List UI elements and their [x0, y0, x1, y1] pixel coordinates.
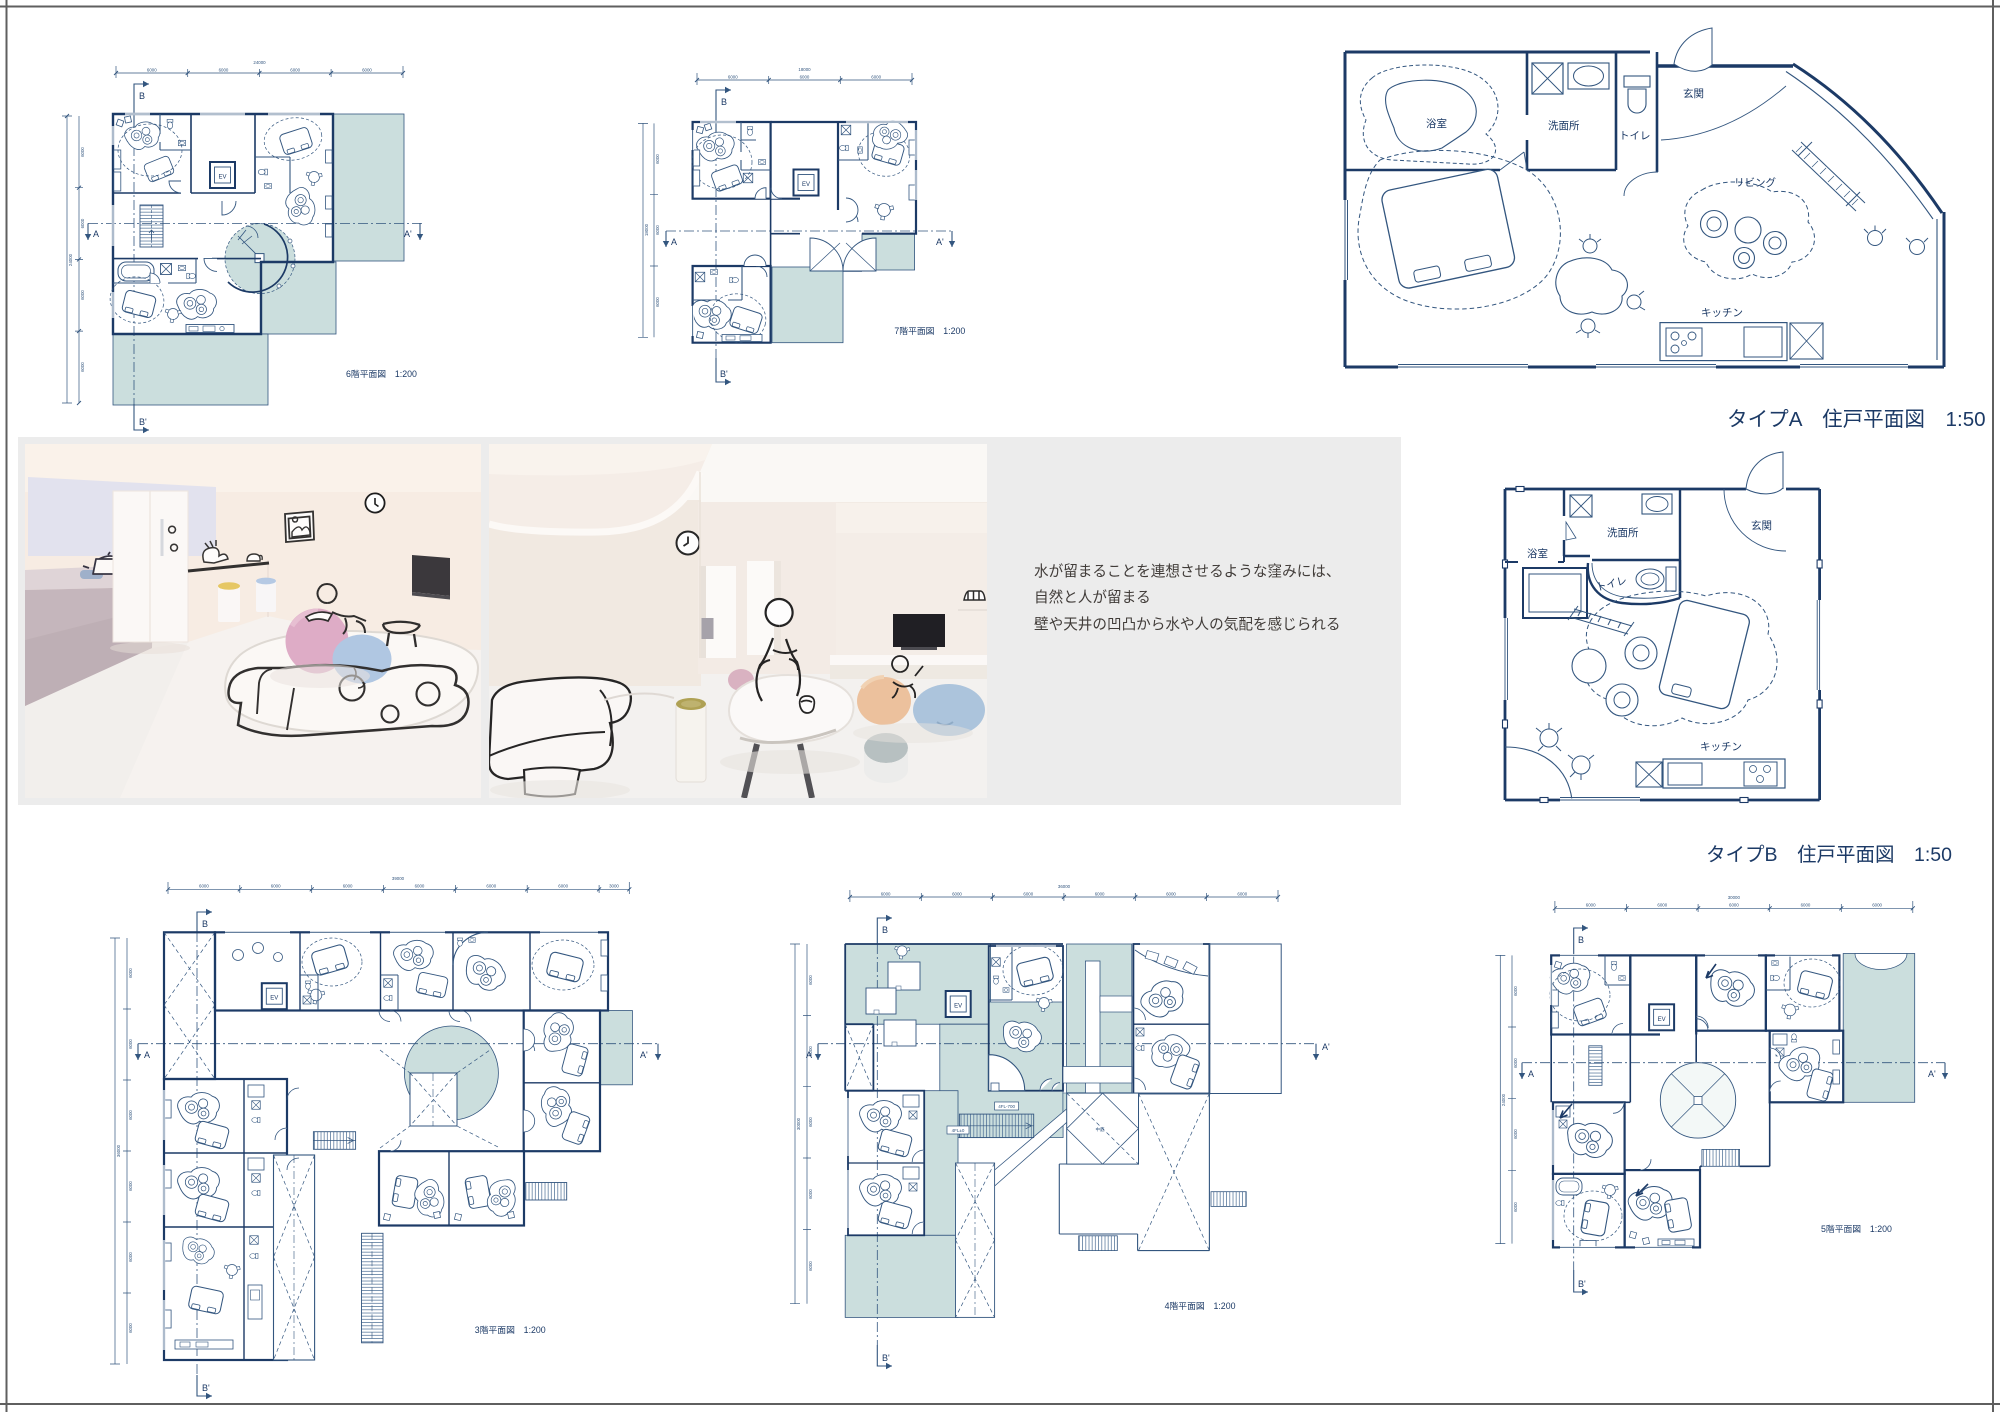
svg-text:洗面所: 洗面所	[1548, 120, 1580, 132]
svg-text:4FL±0: 4FL±0	[952, 1128, 965, 1133]
svg-text:6000: 6000	[1513, 1202, 1518, 1212]
svg-text:18000: 18000	[798, 67, 811, 72]
svg-text:6000: 6000	[1801, 903, 1811, 908]
svg-text:壁や天井の凹凸から水や人の気配を感じられる: 壁や天井の凹凸から水や人の気配を感じられる	[1034, 616, 1340, 633]
svg-text:6000: 6000	[1237, 892, 1247, 897]
svg-text:浴室: 浴室	[1527, 547, 1548, 560]
svg-text:B: B	[1578, 935, 1584, 945]
svg-text:A': A'	[1928, 1069, 1936, 1079]
svg-text:6000: 6000	[1729, 903, 1739, 908]
svg-text:30000: 30000	[796, 1117, 801, 1130]
svg-text:6000: 6000	[1513, 1058, 1518, 1068]
svg-text:タイプB 住戸平面図 1:50: タイプB 住戸平面図 1:50	[1706, 844, 1952, 866]
svg-text:6000: 6000	[128, 1252, 133, 1262]
svg-text:B': B'	[139, 417, 147, 427]
svg-text:A: A	[671, 237, 677, 247]
svg-text:6000: 6000	[486, 884, 496, 889]
svg-text:6000: 6000	[1166, 892, 1176, 897]
svg-text:キッチン: キッチン	[1701, 307, 1743, 319]
svg-text:30000: 30000	[1728, 895, 1741, 900]
svg-text:6000: 6000	[80, 147, 85, 157]
svg-text:A: A	[1528, 1069, 1534, 1079]
svg-text:6000: 6000	[128, 1181, 133, 1191]
svg-text:6000: 6000	[415, 884, 425, 889]
svg-text:6000: 6000	[1657, 903, 1667, 908]
svg-text:3階平面図 1:200: 3階平面図 1:200	[475, 1325, 546, 1335]
svg-text:6000: 6000	[128, 1039, 133, 1049]
svg-text:6000: 6000	[80, 218, 85, 228]
svg-text:リビング: リビング	[1734, 176, 1776, 189]
svg-text:6000: 6000	[881, 892, 891, 897]
svg-text:6000: 6000	[808, 1117, 813, 1127]
svg-text:3000: 3000	[609, 884, 619, 889]
svg-text:浴室: 浴室	[1426, 117, 1447, 130]
svg-text:24000: 24000	[253, 60, 266, 65]
svg-text:6000: 6000	[290, 68, 300, 73]
svg-text:6000: 6000	[362, 68, 372, 73]
svg-text:6000: 6000	[1513, 986, 1518, 996]
svg-text:6000: 6000	[199, 884, 209, 889]
svg-text:B: B	[139, 91, 145, 101]
svg-text:36000: 36000	[1058, 884, 1071, 889]
svg-text:4FL-700: 4FL-700	[998, 1104, 1015, 1109]
svg-text:6000: 6000	[80, 362, 85, 372]
svg-text:5階平面図 1:200: 5階平面図 1:200	[1821, 1224, 1892, 1234]
svg-text:自然と人が留まる: 自然と人が留まる	[1034, 589, 1151, 606]
svg-text:18000: 18000	[644, 223, 649, 236]
svg-text:玄関: 玄関	[1751, 519, 1772, 532]
svg-text:39000: 39000	[392, 876, 405, 881]
svg-text:6000: 6000	[219, 68, 229, 73]
svg-text:玄関: 玄関	[1683, 87, 1704, 100]
svg-text:B': B'	[882, 1353, 890, 1363]
svg-text:6000: 6000	[558, 884, 568, 889]
svg-text:A': A'	[640, 1050, 648, 1060]
svg-text:6000: 6000	[1023, 892, 1033, 897]
svg-text:6000: 6000	[128, 1323, 133, 1333]
svg-text:6000: 6000	[271, 884, 281, 889]
svg-text:6000: 6000	[655, 225, 660, 235]
svg-text:6000: 6000	[655, 154, 660, 164]
svg-text:B': B'	[1578, 1279, 1586, 1289]
svg-text:中庭: 中庭	[1096, 1126, 1105, 1133]
svg-text:6階平面図 1:200: 6階平面図 1:200	[346, 369, 417, 379]
svg-text:6000: 6000	[800, 75, 810, 80]
svg-text:A': A'	[404, 229, 412, 239]
svg-text:A: A	[93, 229, 99, 239]
svg-text:A': A'	[936, 237, 944, 247]
svg-text:6000: 6000	[1872, 903, 1882, 908]
svg-text:6000: 6000	[1586, 903, 1596, 908]
svg-text:7階平面図 1:200: 7階平面図 1:200	[894, 326, 965, 336]
svg-text:6000: 6000	[808, 1189, 813, 1199]
svg-text:6000: 6000	[343, 884, 353, 889]
svg-text:6000: 6000	[808, 975, 813, 985]
svg-text:B: B	[202, 919, 208, 929]
svg-text:A: A	[806, 1050, 812, 1060]
svg-text:洗面所: 洗面所	[1607, 527, 1639, 539]
svg-text:キッチン: キッチン	[1700, 741, 1742, 753]
svg-text:6000: 6000	[128, 968, 133, 978]
svg-text:6000: 6000	[147, 68, 157, 73]
svg-text:トイレ: トイレ	[1619, 130, 1651, 142]
svg-text:6000: 6000	[952, 892, 962, 897]
svg-text:6000: 6000	[655, 297, 660, 307]
svg-text:水が留まることを連想させるような窪みには、: 水が留まることを連想させるような窪みには、	[1034, 563, 1340, 580]
svg-text:6000: 6000	[128, 1110, 133, 1120]
svg-text:36000: 36000	[116, 1144, 121, 1157]
svg-text:B: B	[721, 97, 727, 107]
svg-text:A': A'	[1322, 1042, 1330, 1052]
svg-text:24000: 24000	[1501, 1093, 1506, 1106]
svg-text:B': B'	[720, 369, 728, 379]
svg-text:6000: 6000	[871, 75, 881, 80]
svg-text:6000: 6000	[1095, 892, 1105, 897]
svg-text:6000: 6000	[728, 75, 738, 80]
svg-text:6000: 6000	[1513, 1129, 1518, 1139]
svg-text:6000: 6000	[808, 1261, 813, 1271]
svg-text:タイプA 住戸平面図 1:50: タイプA 住戸平面図 1:50	[1727, 408, 1986, 431]
svg-text:B': B'	[202, 1383, 210, 1393]
svg-text:A: A	[144, 1050, 150, 1060]
svg-text:6000: 6000	[80, 290, 85, 300]
svg-text:24000: 24000	[68, 253, 73, 266]
svg-text:B: B	[882, 925, 888, 935]
svg-text:4階平面図 1:200: 4階平面図 1:200	[1165, 1301, 1236, 1311]
